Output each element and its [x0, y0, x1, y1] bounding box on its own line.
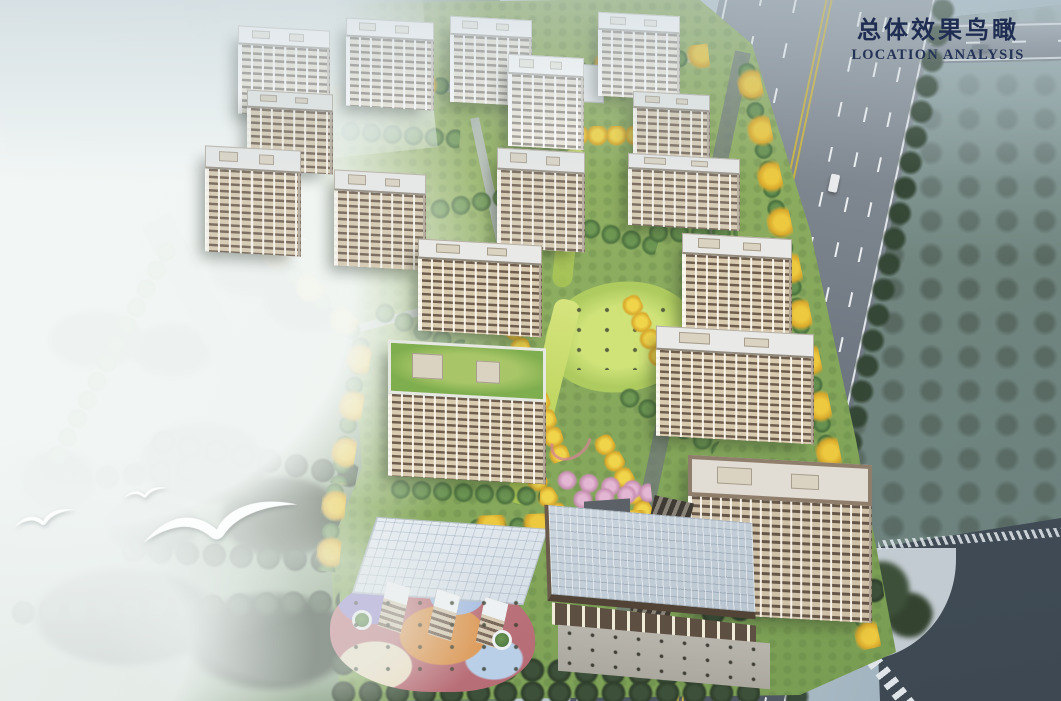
title-block: 总体效果鸟瞰 LOCATION ANALYSIS [823, 10, 1053, 64]
page-subtitle: LOCATION ANALYSIS [823, 47, 1053, 64]
bird-icon [121, 482, 171, 509]
bird-icon [10, 502, 79, 540]
birds-layer [0, 0, 1061, 701]
page-title: 总体效果鸟瞰 [823, 10, 1053, 45]
bird-icon [135, 484, 306, 566]
aerial-rendering: 总体效果鸟瞰 LOCATION ANALYSIS [0, 0, 1061, 701]
